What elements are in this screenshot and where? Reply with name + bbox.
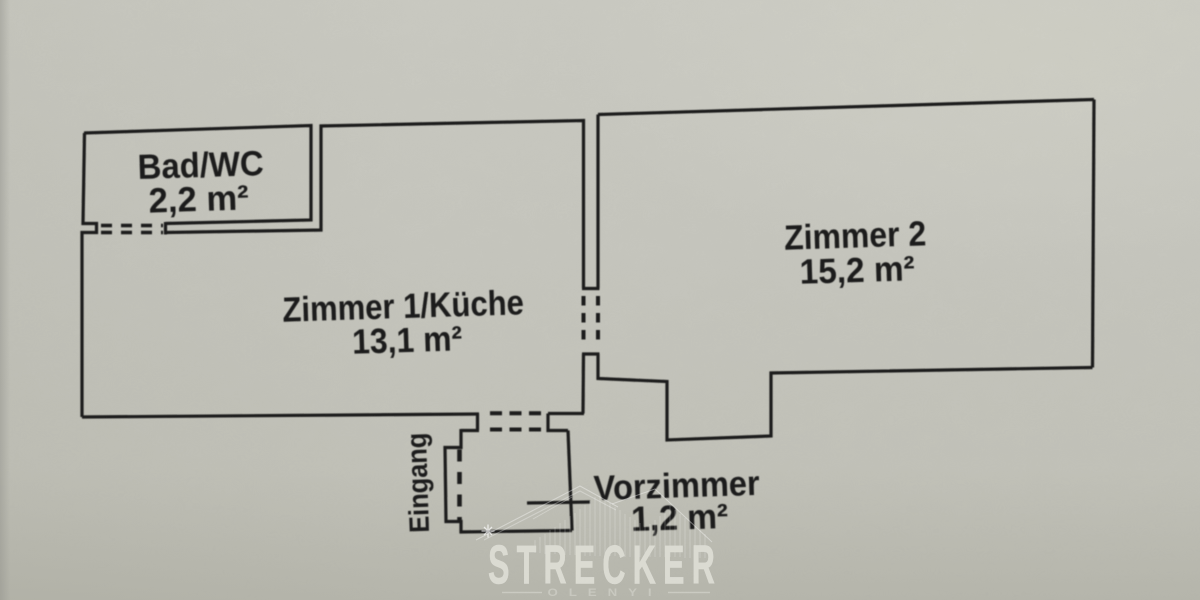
svg-text:15,2 m²: 15,2 m² — [799, 249, 915, 292]
svg-text:Eingang: Eingang — [401, 432, 435, 533]
svg-text:13,1 m²: 13,1 m² — [352, 319, 463, 361]
svg-text:2,2 m²: 2,2 m² — [148, 178, 249, 220]
svg-text:OLENYI: OLENYI — [548, 587, 663, 599]
